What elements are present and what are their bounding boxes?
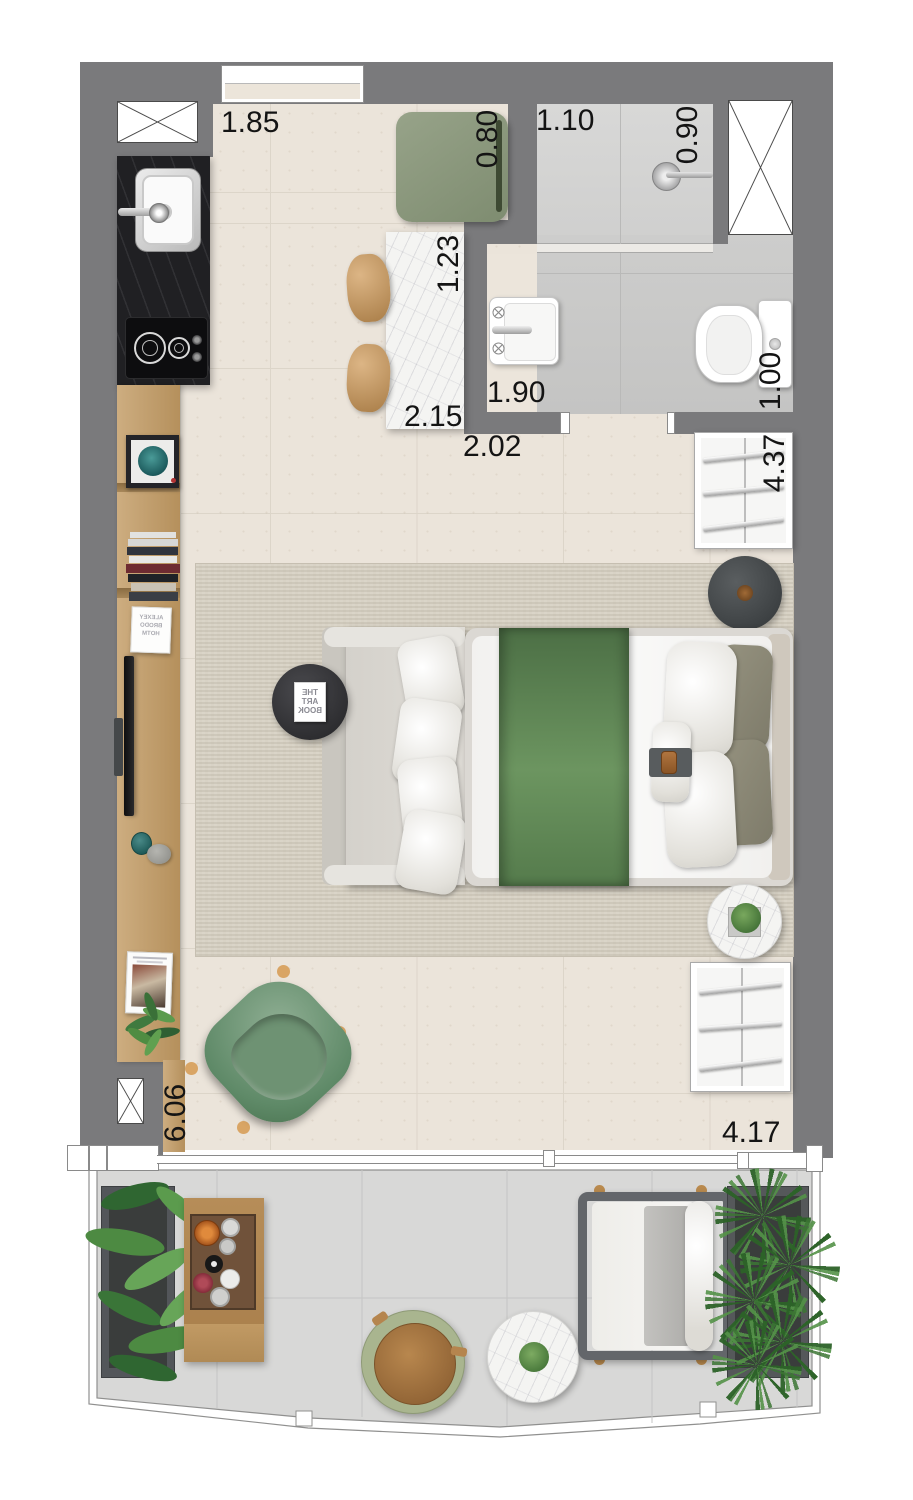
wall-left [80,62,117,1158]
book [128,574,178,582]
book [129,592,178,601]
palm-plant [712,1320,802,1410]
framed-art [126,435,179,488]
balcony-table-plant [519,1342,549,1372]
shaft-symbol-bathroom [728,100,793,235]
armchair-leg [277,965,290,978]
lounge-roll-pillow [685,1201,713,1351]
dim-label-kitchen-width: 1.85 [221,106,279,140]
sofa-back [322,627,348,885]
bottle-cap-dot [211,1261,217,1267]
glass [219,1238,236,1255]
bar-bench [184,1324,264,1362]
tv [124,656,134,816]
bathroom-door-jamb [667,412,675,434]
book-stack [124,530,180,606]
lounge-throw [644,1206,690,1346]
dim-label-dining-length: 2.15 [404,400,462,434]
sideboard-plant [122,998,180,1058]
dim-label-bedroom-length: 4.37 [759,421,791,505]
bathroom-door-jamb [560,412,570,434]
dim-label-bath-width: 1.90 [487,376,545,410]
dim-label-cabinet-width: 0.80 [472,97,504,181]
book [128,539,178,546]
sliding-door-stop [543,1150,555,1167]
dim-label-hall-width: 2.02 [463,430,521,464]
magazine-title: ALEXEY BRODO HOTM [132,613,171,638]
faucet-cross-handle-icon [492,306,505,319]
plate-red [193,1273,213,1293]
faucet-cross-handle-icon [492,342,505,355]
sliding-door-panel [748,1152,808,1169]
potted-plant [731,903,761,933]
wardrobe-interior [697,968,784,1086]
sink-faucet [492,326,532,334]
cooktop [126,318,207,378]
shaft-symbol-bottom-left [117,1078,144,1124]
lounge-chair [578,1192,732,1360]
vase [737,585,753,601]
wall-shower-shaft-strip [713,104,728,244]
book [130,532,176,538]
wall-kitchen-bath-divider [508,62,537,244]
burner-small-icon [168,337,190,359]
balcony-bar-table [184,1198,264,1362]
table-wood-top [374,1323,456,1405]
shower-threshold [537,243,713,253]
armchair-leg [237,1121,250,1134]
tile-joint [620,253,621,414]
floor-plan-canvas: THE ART BOOK ALEXEY BRO [0,0,913,1500]
bed-runner-green [499,628,629,886]
red-dot [171,478,176,483]
window-sill [225,83,360,99]
cup-white [220,1269,240,1289]
book-title: THE ART BOOK [295,688,325,715]
lumbar-pillow-buckle [661,751,677,774]
sliding-door-glass [157,1155,749,1164]
plate-silver [221,1218,240,1237]
book [129,556,177,563]
cooktop-knob [192,352,202,362]
toilet-seat [706,315,752,375]
sideboard-magazine: ALEXEY BRODO HOTM [130,606,172,653]
balcony-door-jamb [67,1145,89,1171]
teal-plate-icon [138,446,168,476]
shaft-symbol-top-left [117,101,198,143]
balcony-door-jamb [107,1145,159,1171]
dim-label-shower-depth: 0.90 [672,93,704,177]
tv-mount [114,718,123,776]
dim-label-balcony-width: 4.17 [722,1116,780,1150]
magazine-headline [133,956,167,959]
cooktop-knob [192,335,202,345]
balcony-door-jamb [89,1145,107,1171]
decor-stone [147,844,171,864]
dim-label-shower-width: 1.10 [536,104,594,138]
burner-large-icon [134,332,166,364]
wardrobe-bottom [690,962,791,1092]
dim-label-table-width: 1.23 [433,222,465,306]
dim-label-toilet-width: 1.00 [755,339,787,423]
book [127,547,178,555]
book [131,583,176,591]
wall-dining-bath-divider [464,232,487,434]
book [126,564,180,573]
window-top [221,65,364,103]
wall-right [793,62,833,1158]
plate-silver [210,1287,230,1307]
plate-orange [194,1220,220,1246]
bathroom-sink [489,297,559,365]
dim-label-living-length: 6.06 [160,1071,192,1155]
tile-joint [620,104,621,244]
magazine-headline [137,961,163,964]
balcony-door-jamb [806,1145,823,1172]
faucet-handle [149,203,169,223]
coffee-table-book: THE ART BOOK [294,682,326,722]
tile-joint [537,273,793,274]
